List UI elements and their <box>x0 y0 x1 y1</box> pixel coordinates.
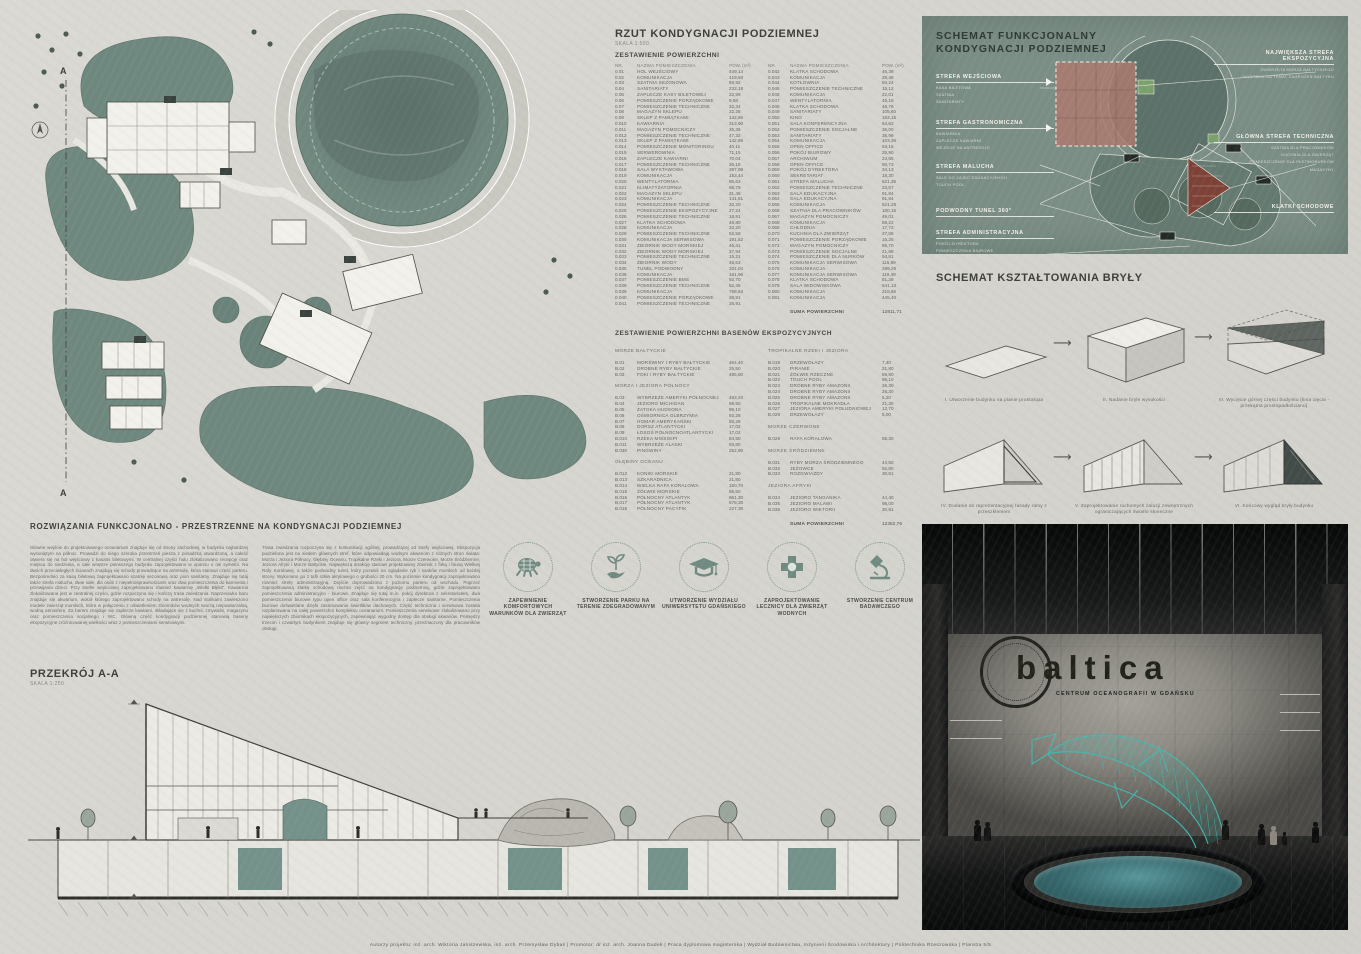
table-row: B.03FOKI I RYBY BAŁTYCKIE495,50 <box>615 372 765 378</box>
sprout-hand-icon <box>599 550 633 584</box>
medical-cross-icon <box>775 550 809 584</box>
table-row: B.028DRZEWOŁAZY5,00 <box>768 412 918 418</box>
massing-step-6: VI. Końcowy wygląd bryły budynku <box>1210 426 1338 509</box>
zone-tunnel: PODWODNY TUNEL 360° <box>936 208 1054 217</box>
plan-scale: SKALA 1:500 <box>615 41 819 47</box>
table-row: B.029RAFA KORALOWA85,30 <box>768 436 918 442</box>
section-cut-label-top: A <box>60 66 67 76</box>
arrow-right-icon: ⟶ <box>1194 450 1213 465</box>
pool-group-heading: MORZE ŚRÓDZIEMNE <box>768 449 918 455</box>
section-title: PRZEKRÓJ A-A <box>30 668 119 680</box>
graduation-cap-icon <box>686 550 722 584</box>
rooms-table-left-column: 0.01HOL WEJŚCIOWY449,140.02KOMUNIKACJA41… <box>615 69 765 307</box>
solutions-text-col1: Główne wejście do projektowanego oceanar… <box>30 545 248 626</box>
solutions-text-col2: Trasa zwiedzania rozpoczyna się z komuni… <box>262 545 480 631</box>
zone-kids: STREFA MALUCHA SALE DO ZAJĘĆ EDUKACYJNYC… <box>936 164 1054 187</box>
person-silhouette <box>1282 832 1287 845</box>
section-cut-label-bottom: A <box>60 488 67 498</box>
massing-step-5: V. Zaprojektowanie ruchomych żaluzji zew… <box>1070 426 1198 515</box>
goal-clinic: ZAPROJEKTOWANIE LECZNICY DLA ZWIERZĄT WO… <box>750 542 834 617</box>
goal-park: STWORZENIE PARKU NA TERENIE ZDEGRADOWANY… <box>574 542 658 611</box>
rooms-sum-row: SUMA POWIERZCHNI 12811,71 <box>768 310 918 315</box>
table-row: B.036JEZIORO WIKTORII30,81 <box>768 507 918 513</box>
render-left-column <box>922 584 948 844</box>
section-drawing <box>28 690 920 930</box>
arrow-right-icon: ⟶ <box>1194 330 1213 345</box>
dolphin-sculpture <box>1018 720 1258 870</box>
zone-main-exhibition: NAJWIĘKSZA STREFA EKSPOZYCYJNA ZWIERZĘTA… <box>1214 50 1334 79</box>
pool-group-heading: MORZE BAŁTYCKIE <box>615 349 765 355</box>
zone-administration: STREFA ADMINISTRACYJNA POKÓJ DYREKTORA P… <box>936 230 1054 254</box>
zone-gastronomy: STREFA GASTRONOMICZNA KAWIARNIA ZAPLECZE… <box>936 120 1054 151</box>
plan-title: RZUT KONDYGNACJI PODZIEMNEJ <box>615 28 819 40</box>
massing-title: SCHEMAT KSZTAŁTOWANIA BRYŁY <box>936 272 1143 284</box>
table-row: B.033ROZGWIAZDY30,81 <box>768 471 918 477</box>
arrow-right-icon: ⟶ <box>1053 450 1072 465</box>
pools-sum-row: SUMA POWIERZCHNI12352,76 <box>768 522 918 527</box>
table-row: 0.041POMIESZCZENIE TECHNICZNE28,91 <box>615 301 765 307</box>
table-row: B.018PÓŁNOCNY PACYFIK227,30 <box>615 506 765 512</box>
goal-research: STWORZENIE CENTRUM BADAWCZEGO <box>838 542 922 611</box>
pools-table-left-column: MORZE BAŁTYCKIEB.01MORŚWINY I RYBY BAŁTY… <box>615 342 765 512</box>
person-silhouette <box>1222 820 1229 840</box>
functional-scheme-panel: SCHEMAT FUNKCJONALNY KONDYGNACJI PODZIEM… <box>922 16 1348 254</box>
render-right-column <box>1322 584 1348 844</box>
massing-step-1: I. Utworzenie budynku na planie prostoką… <box>930 310 1058 403</box>
person-silhouette <box>984 822 991 841</box>
pool-group-heading: MORZA I JEZIORA PÓŁNOCY <box>615 384 765 390</box>
pool-group-heading: TROPIKALNE RZEKI I JEZIORA <box>768 349 918 355</box>
solutions-title: ROZWIĄZANIA FUNKCJONALNO - PRZESTRZENNE … <box>30 522 402 531</box>
person-silhouette <box>1270 826 1277 845</box>
section-scale: SKALA 1:250 <box>30 681 119 687</box>
render-ceiling-lights <box>922 524 1348 634</box>
goal-university: UTWORZENIE WYDZIAŁU UNIWERSYTETU GDAŃSKI… <box>662 542 746 611</box>
massing-panel: SCHEMAT KSZTAŁTOWANIA BRYŁY I. Utworzeni… <box>922 258 1348 520</box>
microscope-icon <box>863 550 897 584</box>
pool-group-heading: MORZE CZERWONE <box>768 425 918 431</box>
person-silhouette <box>1312 822 1319 843</box>
pool-group-heading: JEZIORA AFRYKI <box>768 484 918 490</box>
massing-step-2: II. Nadanie bryle wysokości <box>1070 302 1198 403</box>
zone-entrance: STREFA WEJŚCIOWA KASA BILETOWA SZATNIA S… <box>936 74 1054 105</box>
pools-table-title: ZESTAWIENIE POWIERZCHNI BASENÓW EKSPOZYC… <box>615 330 915 337</box>
baltica-logo: baltica CENTRUM OCEANOGRAFII W GDAŃSKU <box>980 636 1230 720</box>
table-row: B.030PINGWINY252,90 <box>615 448 765 454</box>
rooms-table-right-column: 0.042KLATKA SCHODOWA46,380.043KOMUNIKACJ… <box>768 69 918 301</box>
zone-technical: GŁÓWNA STREFA TECHNICZNA SZATNIA DLA PRA… <box>1214 134 1334 172</box>
massing-step-3: III. Wycięcie górnej części budynku (lin… <box>1210 294 1338 409</box>
rooms-table-title: ZESTAWIENIE POWIERZCHNI <box>615 52 719 59</box>
goal-animal-welfare: ZAPEWNIENIE KOMFORTOWYCH WARUNKÓW DLA ZW… <box>486 542 570 617</box>
turtle-icon <box>511 550 545 584</box>
person-silhouette <box>1258 824 1265 845</box>
board-footer: Autorzy projektu: inż. arch. Wiktoria Ja… <box>0 943 1361 948</box>
logo-wordmark: baltica <box>1016 649 1170 687</box>
interior-render: baltica CENTRUM OCEANOGRAFII W GDAŃSKU <box>922 524 1348 930</box>
floor-plan-drawing: A A <box>14 10 606 512</box>
logo-tagline: CENTRUM OCEANOGRAFII W GDAŃSKU <box>1056 691 1195 697</box>
pool-group-heading: GŁĘBINY OCEANU <box>615 460 765 466</box>
zone-staircases: KLATKI SCHODOWE <box>1214 204 1334 213</box>
table-row: 0.081KOMUNIKACJA445,40 <box>768 295 918 301</box>
presentation-board: A A RZUT KONDYGNACJI PODZIEMNEJ SKALA 1:… <box>0 0 1361 954</box>
pools-table-right-column: TROPIKALNE RZEKI I JEZIORAB.019DRZEWOŁAZ… <box>768 342 918 527</box>
person-silhouette <box>974 820 981 841</box>
arrow-right-icon: ⟶ <box>1053 336 1072 351</box>
massing-step-4: IV. Dodanie do reprezentacyjnej fasady r… <box>930 426 1058 515</box>
goals-row: ZAPEWNIENIE KOMFORTOWYCH WARUNKÓW DLA ZW… <box>486 542 922 646</box>
